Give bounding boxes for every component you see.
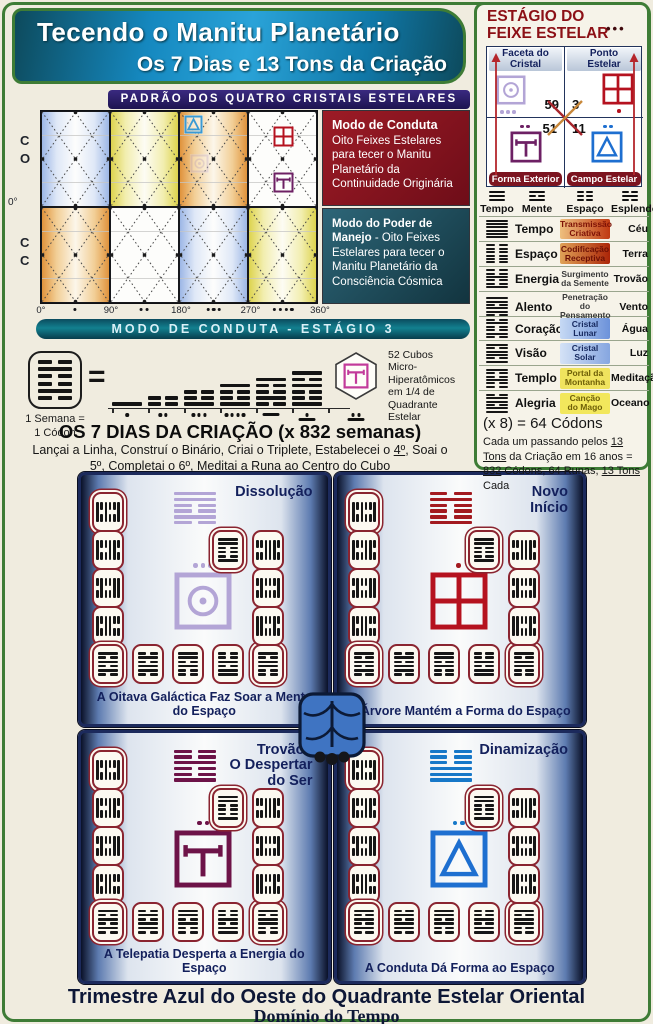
line-segment — [174, 509, 192, 512]
line-segment — [485, 804, 493, 807]
hexagram-line — [38, 360, 72, 364]
hexagram-line — [38, 367, 72, 371]
hexagram-card — [252, 568, 284, 608]
line-segment — [524, 616, 527, 624]
line-segment — [190, 661, 198, 664]
chart-panel — [41, 111, 110, 207]
line-segment — [117, 809, 120, 817]
line-segment — [516, 798, 519, 806]
hexagram-line — [529, 836, 532, 856]
crystal-pattern-chart — [40, 110, 318, 304]
line-segment — [98, 652, 118, 655]
line-segment — [529, 578, 532, 586]
hexagram-icon — [96, 578, 120, 598]
line-segment — [512, 590, 515, 598]
line-segment — [360, 809, 363, 817]
hexagram-icon — [514, 910, 534, 934]
hexagram-card — [212, 644, 244, 684]
line-segment — [474, 927, 494, 930]
hexagram-icon — [512, 616, 536, 636]
line-segment — [292, 402, 322, 406]
hexagram-line — [38, 374, 72, 378]
line-segment — [230, 555, 238, 558]
line-segment — [356, 771, 359, 779]
line-segment — [369, 885, 372, 893]
line-segment — [474, 547, 482, 550]
line-segment — [260, 798, 263, 806]
hexagram-line — [516, 874, 519, 894]
line-segment — [38, 389, 72, 393]
line-segment — [230, 922, 238, 925]
line-segment — [138, 669, 158, 672]
dot — [201, 563, 206, 568]
line-segment — [369, 874, 372, 882]
hexagram-line — [356, 836, 359, 856]
hexagram-line — [354, 669, 374, 672]
line-segment — [365, 665, 373, 668]
line-segment — [356, 798, 359, 806]
mayan-dots — [225, 413, 246, 417]
hexagram-line — [486, 286, 508, 288]
hexagram-line — [434, 922, 454, 925]
hexagram-line — [486, 258, 508, 260]
hexagram-card — [92, 788, 124, 828]
hexagram-line — [360, 798, 363, 818]
line-segment — [165, 402, 178, 406]
hexagram-line — [474, 669, 494, 672]
hexagram-line — [486, 273, 508, 275]
line-segment — [258, 665, 278, 668]
hexagram-line — [434, 661, 454, 664]
line-segment — [499, 248, 508, 250]
line-segment — [454, 755, 472, 758]
line-segment — [430, 498, 472, 501]
line-segment — [150, 673, 158, 676]
hexagram-line — [486, 336, 508, 338]
line-segment — [96, 590, 99, 598]
line-segment — [356, 874, 359, 882]
line-segment — [258, 661, 278, 664]
line-segment — [394, 665, 414, 668]
line-segment — [258, 931, 266, 934]
star-field-seal-icon — [184, 115, 203, 134]
line-segment — [622, 195, 638, 197]
hexagram-line — [474, 918, 494, 921]
hexagram-line — [486, 244, 508, 246]
line-segment — [256, 396, 286, 400]
mayan-bar — [263, 413, 280, 416]
line-segment — [138, 656, 158, 659]
hexagram-line — [352, 874, 355, 894]
line-segment — [486, 397, 508, 399]
line-segment — [577, 195, 584, 197]
hexagram-line — [218, 817, 238, 820]
line-segment — [373, 809, 376, 817]
line-segment — [474, 910, 482, 913]
line-segment — [230, 910, 238, 913]
line-segment — [356, 628, 359, 636]
line-segment — [373, 628, 376, 636]
line-segment — [354, 931, 362, 934]
hexagram-line — [486, 304, 508, 306]
line-segment — [230, 804, 238, 807]
line-segment — [100, 502, 103, 510]
quadrant-content: Trovão / O Despertar do SerA Telepatia D… — [84, 736, 325, 979]
hexagram-line — [533, 578, 536, 598]
line-segment — [369, 798, 372, 818]
line-segment — [113, 578, 116, 598]
line-segment — [474, 669, 494, 672]
line-segment — [486, 322, 508, 324]
line-segment — [474, 931, 494, 934]
line-segment — [117, 885, 120, 893]
hexagram-line — [360, 578, 363, 598]
day-stack — [184, 390, 214, 406]
hexagram-line — [258, 661, 278, 664]
hexagram-line — [369, 540, 372, 560]
line-segment — [369, 836, 372, 856]
hexagram-line — [577, 199, 593, 201]
hexagram-line — [434, 673, 454, 676]
hexagram-card — [468, 530, 500, 570]
conduta-estagio-banner: MODO DE CONDUTA - ESTÁGIO 3 — [36, 319, 470, 339]
line-segment — [405, 910, 413, 913]
hexagram-icon — [96, 836, 120, 856]
line-segment — [373, 540, 376, 548]
hexagram-line — [486, 220, 508, 222]
hexagram-line — [486, 376, 508, 378]
hexagram-line — [260, 616, 263, 636]
line-segment — [486, 401, 508, 403]
quadrant-caption: A Oitava Galáctica Faz Soar a Mente do E… — [90, 690, 319, 718]
line-segment — [622, 191, 629, 193]
line-segment — [486, 326, 495, 328]
line-segment — [273, 798, 276, 818]
hexagram-line — [474, 652, 494, 655]
hexagram-line — [138, 669, 158, 672]
hexagram-line — [273, 540, 276, 560]
hexagram-line — [486, 251, 508, 253]
line-segment — [265, 847, 268, 855]
line-segment — [117, 760, 120, 780]
hexagram-line — [184, 402, 214, 406]
hexagram-line — [292, 402, 322, 406]
hexagram-line — [514, 914, 534, 917]
line-segment — [265, 628, 268, 636]
line-segment — [474, 914, 482, 917]
hexagram-line — [430, 761, 472, 764]
line-segment — [237, 396, 250, 400]
line-segment — [474, 922, 482, 925]
hexagram-line — [184, 396, 214, 400]
hexagram-line — [117, 798, 120, 818]
line-segment — [109, 760, 112, 768]
line-segment — [138, 661, 146, 664]
hexagram-line — [524, 836, 527, 856]
line-segment — [394, 927, 414, 930]
line-segment — [178, 914, 198, 917]
hexagram-icon — [258, 910, 278, 934]
line-segment — [520, 578, 523, 586]
hexagram-line — [292, 371, 322, 375]
hexagram-line — [486, 236, 508, 238]
line-segment — [514, 661, 534, 664]
hexagram-line — [524, 578, 527, 598]
dot — [526, 125, 530, 129]
hexagram-line — [352, 502, 355, 522]
line-segment — [273, 384, 286, 388]
hexagram-icon — [218, 652, 238, 676]
hexagram-line — [486, 314, 508, 316]
dot — [203, 413, 207, 417]
line-segment — [354, 922, 362, 925]
hexagram-icon — [352, 502, 376, 522]
line-segment — [356, 514, 359, 522]
hexagram-line — [113, 502, 116, 522]
hexagram-line — [486, 329, 508, 331]
dot — [236, 413, 240, 417]
line-segment — [524, 885, 527, 893]
line-segment — [486, 233, 508, 235]
line-segment — [277, 616, 280, 624]
line-segment — [499, 261, 508, 263]
line-segment — [117, 874, 120, 882]
row-phrase: Canção do Mago — [560, 393, 610, 414]
line-segment — [405, 661, 413, 664]
dot — [453, 821, 458, 826]
trigram-icon-cell — [559, 191, 611, 201]
hexagram-line — [430, 492, 472, 495]
line-segment — [485, 547, 493, 550]
line-segment — [489, 191, 505, 193]
star-field-seal-icon — [430, 830, 488, 888]
line-segment — [369, 540, 372, 560]
estagio-title-line2: FEIXE ESTELAR — [487, 26, 608, 43]
codons-line1: (x 8) = 64 Códons — [483, 415, 645, 432]
line-segment — [485, 652, 493, 655]
line-segment — [474, 542, 494, 545]
dot — [512, 110, 516, 114]
hexagram-icon — [486, 344, 508, 363]
line-segment — [364, 874, 367, 894]
line-segment — [105, 760, 108, 780]
dot — [164, 413, 168, 417]
line-segment — [98, 656, 106, 659]
mayan-dots — [305, 413, 309, 417]
hexagram-icon — [486, 319, 508, 338]
line-segment — [512, 874, 515, 894]
line-segment — [631, 199, 638, 201]
line-segment — [277, 628, 280, 636]
line-segment — [434, 661, 442, 664]
hexagram-line — [218, 652, 238, 655]
line-segment — [533, 552, 536, 560]
line-segment — [174, 521, 192, 524]
hexagram-icon — [352, 578, 376, 598]
line-segment — [273, 836, 276, 844]
hexagram-line — [486, 322, 508, 324]
dot — [191, 413, 195, 417]
line-segment — [100, 885, 103, 893]
line-segment — [260, 578, 263, 598]
dot — [158, 413, 162, 417]
hexagram-line — [178, 665, 198, 668]
hexagram-line — [430, 498, 472, 501]
page-subtitle: Os 7 Dias e 13 Tons da Criação — [137, 53, 447, 77]
hexagram-line — [98, 661, 118, 664]
line-segment — [499, 279, 508, 281]
line-segment — [220, 384, 250, 388]
bracket-tick — [328, 409, 330, 413]
hexagram-line — [354, 931, 374, 934]
line-segment — [529, 836, 532, 844]
hexagram-line — [174, 750, 216, 753]
line-segment — [237, 390, 250, 394]
hexagram-line — [256, 798, 259, 818]
line-segment — [373, 616, 376, 624]
hexagram-card — [252, 644, 284, 684]
hexagram-line — [273, 874, 276, 894]
line-segment — [174, 498, 216, 501]
hexagram-line — [486, 372, 508, 374]
text-segment: , Completai o — [101, 459, 178, 473]
hexagram-line — [486, 233, 508, 235]
line-segment — [218, 817, 238, 820]
hexagram-card — [348, 644, 380, 684]
hexagram-line — [577, 191, 593, 193]
y-axis-label-top-2: O — [20, 151, 30, 166]
line-segment — [109, 874, 112, 894]
line-segment — [218, 922, 226, 925]
line-segment — [98, 669, 118, 672]
line-segment — [394, 918, 402, 921]
hexagram-line — [260, 874, 263, 894]
hexagram-line — [512, 836, 515, 856]
hexagram-line — [486, 255, 508, 257]
hexagram-icon — [352, 836, 376, 856]
line-segment — [529, 195, 536, 197]
line-segment — [354, 910, 374, 913]
hexagram-icon — [486, 369, 508, 388]
line-segment — [105, 809, 108, 817]
hexagram-line — [269, 798, 272, 818]
row-phrase: Codificação Receptiva — [560, 243, 610, 264]
codon-hexagram-box — [28, 351, 82, 409]
hexagram-line — [356, 502, 359, 522]
hexagram-line — [100, 836, 103, 856]
hexagram-line — [277, 836, 280, 856]
hexagram-line — [105, 760, 108, 780]
bottom-subtitle: Domínio do Tempo — [0, 1006, 653, 1024]
dot — [357, 413, 361, 417]
line-segment — [309, 396, 322, 400]
trigram-row — [479, 190, 649, 202]
line-segment — [256, 402, 269, 406]
hexagram-line — [474, 817, 494, 820]
line-segment — [256, 616, 259, 636]
hexagram-line — [218, 673, 238, 676]
night-mask-icon — [295, 691, 369, 771]
arrow-icon — [628, 53, 640, 184]
row-name: Energia — [515, 272, 559, 286]
chart-panel — [248, 207, 317, 303]
hexagram-line — [98, 914, 118, 917]
line-segment — [218, 910, 226, 913]
line-segment — [499, 329, 508, 331]
chart-panel — [41, 207, 110, 303]
hexagram-line — [354, 673, 374, 676]
hexagram-line — [529, 540, 532, 560]
y-axis-label-top-1: C — [20, 133, 29, 148]
hexagram-icon — [112, 402, 142, 406]
hexagram-icon — [96, 616, 120, 636]
line-segment — [369, 760, 372, 768]
line-segment — [369, 771, 372, 779]
hexagram-icon — [474, 652, 494, 676]
cubes-note: 52 Cubos Micro-Hiperatômicos em 1/4 de Q… — [388, 349, 476, 423]
hexagram-line — [486, 397, 508, 399]
hexagram-line — [184, 390, 214, 394]
hexagram-line — [258, 673, 278, 676]
hexagram-line — [109, 540, 112, 560]
row-name: Coração — [515, 322, 559, 336]
row-result: Terra — [611, 248, 649, 260]
line-segment — [105, 540, 108, 548]
hexagram-card — [348, 826, 380, 866]
line-segment — [230, 914, 238, 917]
hexagram-line — [430, 778, 472, 781]
line-segment — [486, 379, 508, 381]
x-axis-dots — [140, 308, 149, 311]
hexagram-line — [178, 656, 198, 659]
hexagram-line — [533, 540, 536, 560]
dots-row — [520, 125, 530, 129]
line-segment — [512, 847, 515, 855]
line-segment — [434, 665, 454, 668]
text-segment: Códons, 64 Runas, — [501, 465, 601, 477]
line-segment — [190, 669, 198, 672]
line-segment — [218, 555, 226, 558]
estagio-title-line1: ESTÁGIO DO — [487, 9, 608, 26]
line-segment — [270, 914, 278, 917]
line-segment — [38, 360, 52, 364]
dot — [205, 821, 210, 826]
line-segment — [260, 809, 263, 817]
line-segment — [369, 578, 372, 598]
line-segment — [113, 628, 116, 636]
hexagram-line — [260, 798, 263, 818]
hexagram-line — [113, 874, 116, 894]
hexagram-line — [474, 910, 494, 913]
line-segment — [373, 885, 376, 893]
text-segment: Cada um passando pelos — [483, 436, 611, 448]
line-segment — [364, 798, 367, 818]
line-segment — [273, 390, 286, 394]
hexagram-icon — [292, 371, 322, 406]
hexagram-icon — [174, 492, 216, 524]
hexagram-line — [218, 656, 238, 659]
hexagram-line — [394, 656, 414, 659]
hexagram-line — [516, 616, 519, 636]
line-segment — [352, 847, 355, 855]
line-segment — [256, 836, 259, 844]
hexagram-line — [98, 656, 118, 659]
x-axis-dots — [73, 308, 76, 311]
row-hexagram-cell — [479, 297, 515, 316]
line-segment — [98, 661, 118, 664]
hexagram-line — [218, 800, 238, 803]
hexagram-line — [98, 665, 118, 668]
